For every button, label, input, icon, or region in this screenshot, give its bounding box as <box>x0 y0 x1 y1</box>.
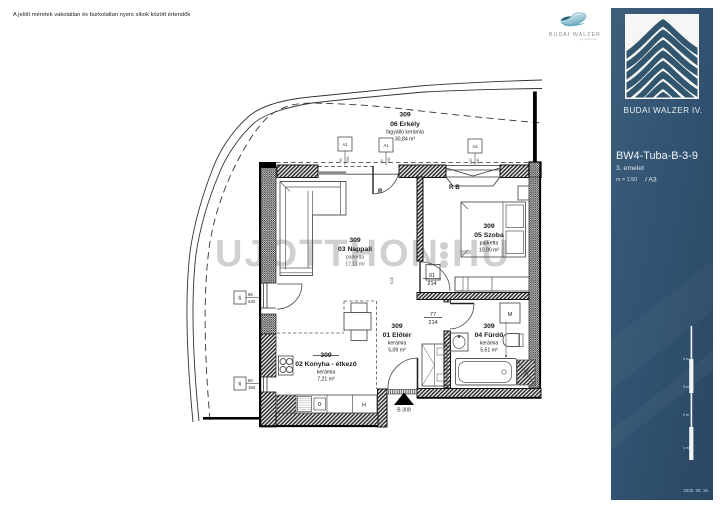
svg-text:A jelölt méretek vakolatlan és: A jelölt méretek vakolatlan és burkolatl… <box>13 12 190 18</box>
svg-text:309: 309 <box>483 323 495 330</box>
svg-text:kerámia: kerámia <box>317 370 336 376</box>
svg-text:2025. 06. 16.: 2025. 06. 16. <box>683 488 709 493</box>
svg-text:309: 309 <box>391 323 403 330</box>
svg-text:parketta: parketta <box>480 241 499 247</box>
svg-text:214: 214 <box>427 281 436 287</box>
svg-text:02 Konyha - étkező: 02 Konyha - étkező <box>295 361 357 368</box>
svg-text:240: 240 <box>387 157 391 163</box>
svg-text:AB: AB <box>238 381 242 386</box>
svg-text:77: 77 <box>430 312 436 318</box>
svg-text:1 m: 1 m <box>683 446 689 450</box>
svg-text:309: 309 <box>399 112 411 119</box>
svg-text:BW4-Tuba-B-3-9: BW4-Tuba-B-3-9 <box>616 150 698 162</box>
svg-text:2 m: 2 m <box>683 413 689 417</box>
svg-text:UJOTTHON: UJOTTHON <box>215 233 440 275</box>
svg-text:A1: A1 <box>342 142 348 147</box>
svg-text:240: 240 <box>476 158 480 164</box>
svg-text:R: R <box>378 188 383 195</box>
svg-text:6,08: 6,08 <box>390 277 394 284</box>
svg-text:parketta: parketta <box>346 255 364 261</box>
svg-text:309: 309 <box>349 237 361 244</box>
svg-text:04 Fürdő: 04 Fürdő <box>475 332 504 339</box>
svg-text:10,90 m²: 10,90 m² <box>479 248 500 254</box>
svg-text:M: M <box>508 312 513 318</box>
svg-text:AB: AB <box>238 295 242 300</box>
svg-text:5,09 m²: 5,09 m² <box>388 348 406 354</box>
svg-text:H: H <box>362 403 366 409</box>
svg-text:150: 150 <box>469 158 473 164</box>
svg-text:240: 240 <box>248 299 256 304</box>
svg-text:90: 90 <box>339 158 343 162</box>
svg-text:kerámia: kerámia <box>388 341 407 347</box>
svg-text:95: 95 <box>248 292 253 297</box>
svg-text:3. emelet: 3. emelet <box>616 165 644 172</box>
svg-text:A2: A2 <box>472 144 478 149</box>
svg-text:214: 214 <box>428 320 437 326</box>
svg-text:B 309: B 309 <box>397 408 411 414</box>
svg-text:150: 150 <box>248 385 256 390</box>
svg-text:by construction: by construction <box>580 38 597 41</box>
svg-text:03 Nappali: 03 Nappali <box>338 246 372 253</box>
svg-text:90: 90 <box>380 159 384 163</box>
svg-text:BUDAI WALZER IV.: BUDAI WALZER IV. <box>623 106 702 115</box>
svg-text:/ A3: / A3 <box>645 177 657 184</box>
svg-text:m = 1:50: m = 1:50 <box>616 177 637 183</box>
svg-text:01 Előtér: 01 Előtér <box>383 332 412 339</box>
svg-text:17,11 m²: 17,11 m² <box>345 262 365 268</box>
svg-text:05 Szoba: 05 Szoba <box>474 232 504 239</box>
svg-text:kerámia: kerámia <box>480 341 499 347</box>
svg-text:R B: R B <box>449 184 460 191</box>
svg-text:309: 309 <box>483 223 495 230</box>
svg-text:4 m: 4 m <box>683 357 689 361</box>
svg-text:30,84 m²: 30,84 m² <box>395 137 416 143</box>
svg-text:60: 60 <box>248 378 253 383</box>
svg-text:240: 240 <box>346 156 350 162</box>
svg-text:3 m: 3 m <box>683 385 689 389</box>
svg-text:7,21 m²: 7,21 m² <box>317 377 335 383</box>
svg-text:A1: A1 <box>383 143 389 148</box>
svg-text:5,61 m²: 5,61 m² <box>480 348 498 354</box>
svg-text:06 Erkély: 06 Erkély <box>390 121 420 128</box>
svg-text:fagyálló kerámia: fagyálló kerámia <box>386 130 424 136</box>
svg-text:91: 91 <box>429 273 435 279</box>
